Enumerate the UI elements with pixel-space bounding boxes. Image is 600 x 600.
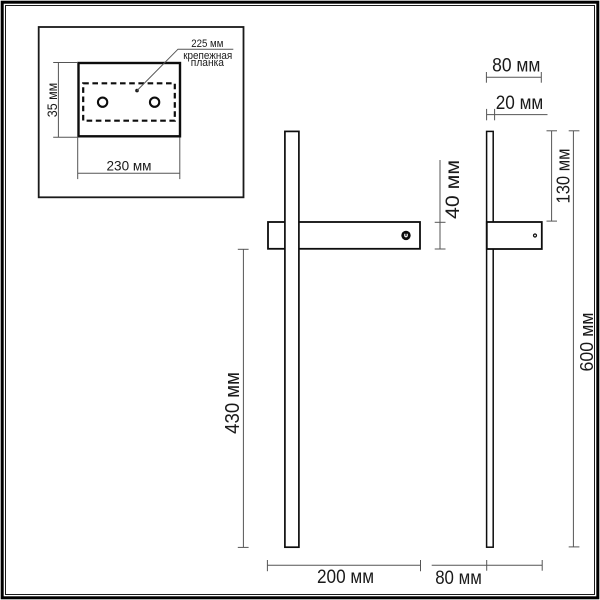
svg-text:230 мм: 230 мм	[107, 158, 152, 174]
svg-text:35 мм: 35 мм	[44, 83, 60, 118]
svg-text:80 мм: 80 мм	[435, 568, 482, 589]
svg-text:130 мм: 130 мм	[553, 149, 573, 204]
svg-text:планка: планка	[191, 57, 225, 69]
svg-text:20 мм: 20 мм	[496, 93, 544, 114]
svg-text:200 мм: 200 мм	[317, 567, 374, 588]
svg-text:600 мм: 600 мм	[576, 313, 597, 372]
svg-text:40 мм: 40 мм	[442, 160, 464, 219]
svg-text:225 мм: 225 мм	[191, 38, 223, 50]
svg-text:430 мм: 430 мм	[221, 372, 244, 434]
svg-text:80 мм: 80 мм	[492, 56, 540, 77]
